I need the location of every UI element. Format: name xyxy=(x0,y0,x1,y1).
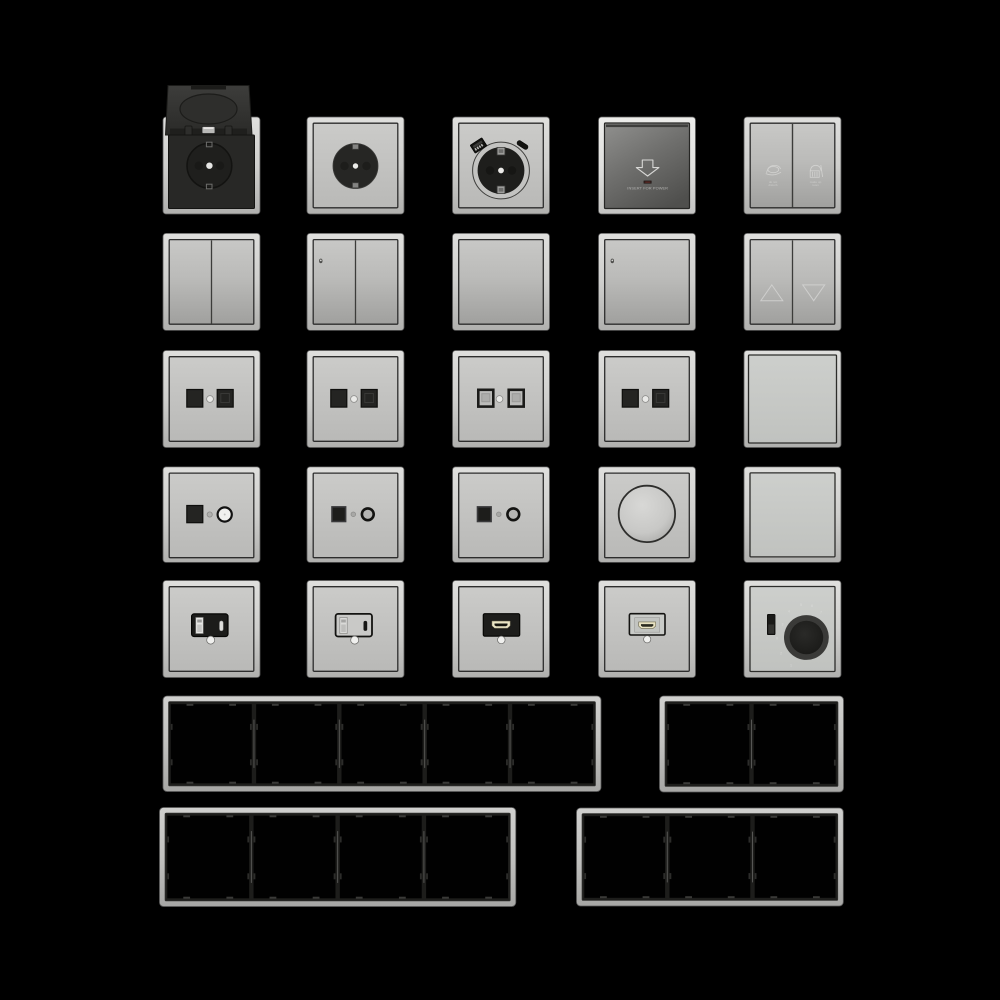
svg-text:7: 7 xyxy=(820,611,822,615)
svg-text:INSERT FOR POWER: INSERT FOR POWER xyxy=(627,186,668,191)
svg-text:room: room xyxy=(812,183,819,187)
svg-text:1: 1 xyxy=(790,664,792,668)
svg-text:6: 6 xyxy=(811,604,813,608)
svg-text:2: 2 xyxy=(780,652,782,656)
svg-text:0: 0 xyxy=(776,637,778,641)
svg-text:disturb: disturb xyxy=(768,183,777,187)
svg-text:3: 3 xyxy=(782,623,784,627)
svg-text:4: 4 xyxy=(788,610,790,614)
svg-text:5: 5 xyxy=(800,603,802,607)
